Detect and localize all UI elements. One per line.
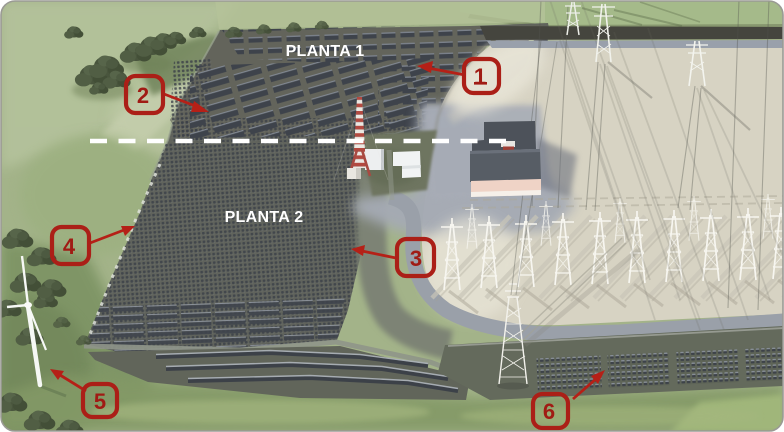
svg-text:6: 6	[543, 399, 555, 424]
svg-text:4: 4	[63, 234, 76, 259]
svg-text:2: 2	[137, 83, 149, 108]
svg-text:PLANTA 2: PLANTA 2	[225, 209, 304, 226]
svg-text:3: 3	[410, 246, 422, 271]
svg-text:PLANTA 1: PLANTA 1	[286, 43, 365, 60]
svg-text:5: 5	[94, 389, 106, 414]
svg-text:1: 1	[474, 64, 486, 89]
